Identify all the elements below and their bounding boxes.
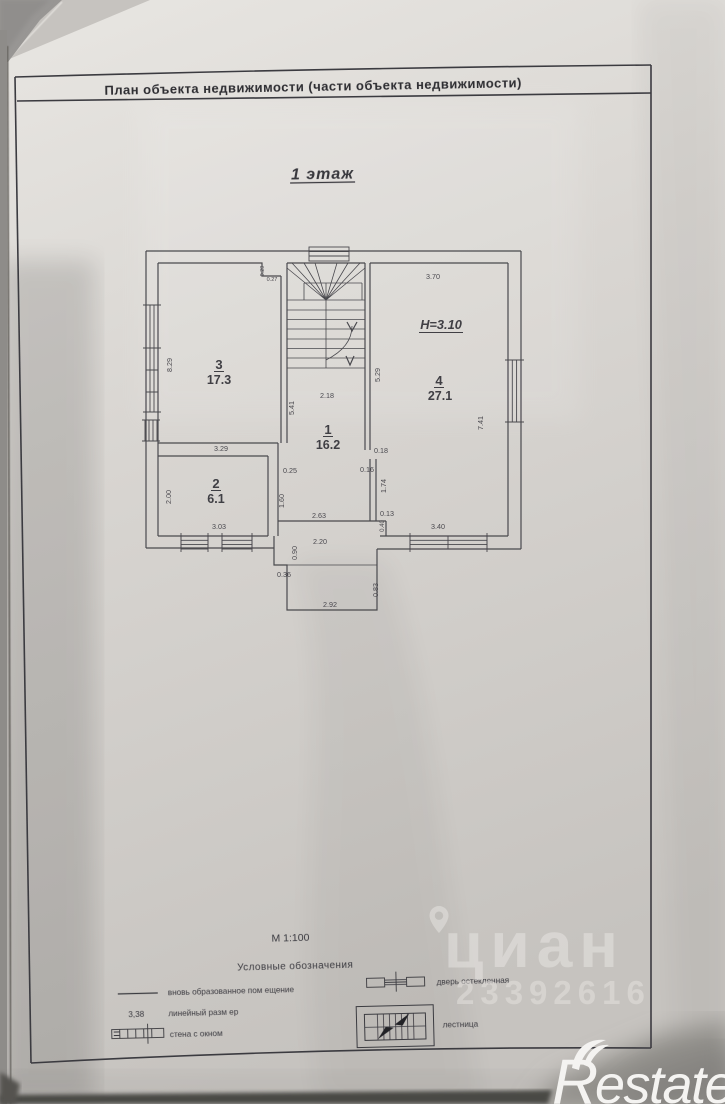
svg-text:1 этаж: 1 этаж xyxy=(291,165,354,183)
svg-text:2: 2 xyxy=(212,476,219,491)
svg-text:1.60: 1.60 xyxy=(277,494,286,508)
svg-text:0.29: 0.29 xyxy=(260,266,266,277)
svg-text:5.29: 5.29 xyxy=(373,368,382,382)
svg-text:линейный разм ер: линейный разм ер xyxy=(168,1008,239,1019)
svg-text:0.18: 0.18 xyxy=(374,446,388,455)
svg-text:2.00: 2.00 xyxy=(164,490,173,504)
svg-text:17.3: 17.3 xyxy=(207,373,231,387)
svg-text:стена с окном: стена с окном xyxy=(170,1029,223,1039)
svg-text:0.27: 0.27 xyxy=(267,277,278,283)
svg-text:0.36: 0.36 xyxy=(277,570,291,579)
svg-text:0.83: 0.83 xyxy=(371,583,380,597)
svg-text:М 1:100: М 1:100 xyxy=(271,932,309,945)
svg-text:1: 1 xyxy=(324,422,331,437)
svg-text:0.16: 0.16 xyxy=(360,465,374,474)
svg-text:23392616: 23392616 xyxy=(456,974,651,1011)
svg-text:estate: estate xyxy=(595,1055,725,1104)
svg-text:лестница: лестница xyxy=(443,1020,479,1030)
svg-text:16.2: 16.2 xyxy=(316,438,340,452)
svg-text:2.18: 2.18 xyxy=(320,391,334,400)
svg-text:3: 3 xyxy=(215,357,222,372)
svg-text:0.13: 0.13 xyxy=(380,509,394,518)
svg-text:3,38: 3,38 xyxy=(128,1010,145,1019)
svg-text:0.25: 0.25 xyxy=(283,466,297,475)
svg-text:5.41: 5.41 xyxy=(287,401,296,415)
svg-text:7.41: 7.41 xyxy=(476,416,485,430)
svg-text:4: 4 xyxy=(435,373,443,388)
svg-text:2.63: 2.63 xyxy=(312,511,326,520)
svg-text:0.90: 0.90 xyxy=(290,546,299,560)
svg-text:1.74: 1.74 xyxy=(379,479,388,493)
svg-text:3.29: 3.29 xyxy=(214,444,228,453)
svg-text:2.20: 2.20 xyxy=(313,537,327,546)
svg-text:3.03: 3.03 xyxy=(212,522,226,531)
svg-text:2.92: 2.92 xyxy=(323,600,337,609)
svg-text:6.1: 6.1 xyxy=(207,492,224,506)
svg-text:8.29: 8.29 xyxy=(165,358,174,372)
svg-text:3.40: 3.40 xyxy=(431,522,445,531)
svg-text:3.70: 3.70 xyxy=(426,272,440,281)
svg-text:0.40: 0.40 xyxy=(380,520,386,532)
svg-text:циан: циан xyxy=(444,909,625,981)
svg-text:27.1: 27.1 xyxy=(428,389,452,403)
svg-text:Н=3.10: Н=3.10 xyxy=(420,317,462,332)
